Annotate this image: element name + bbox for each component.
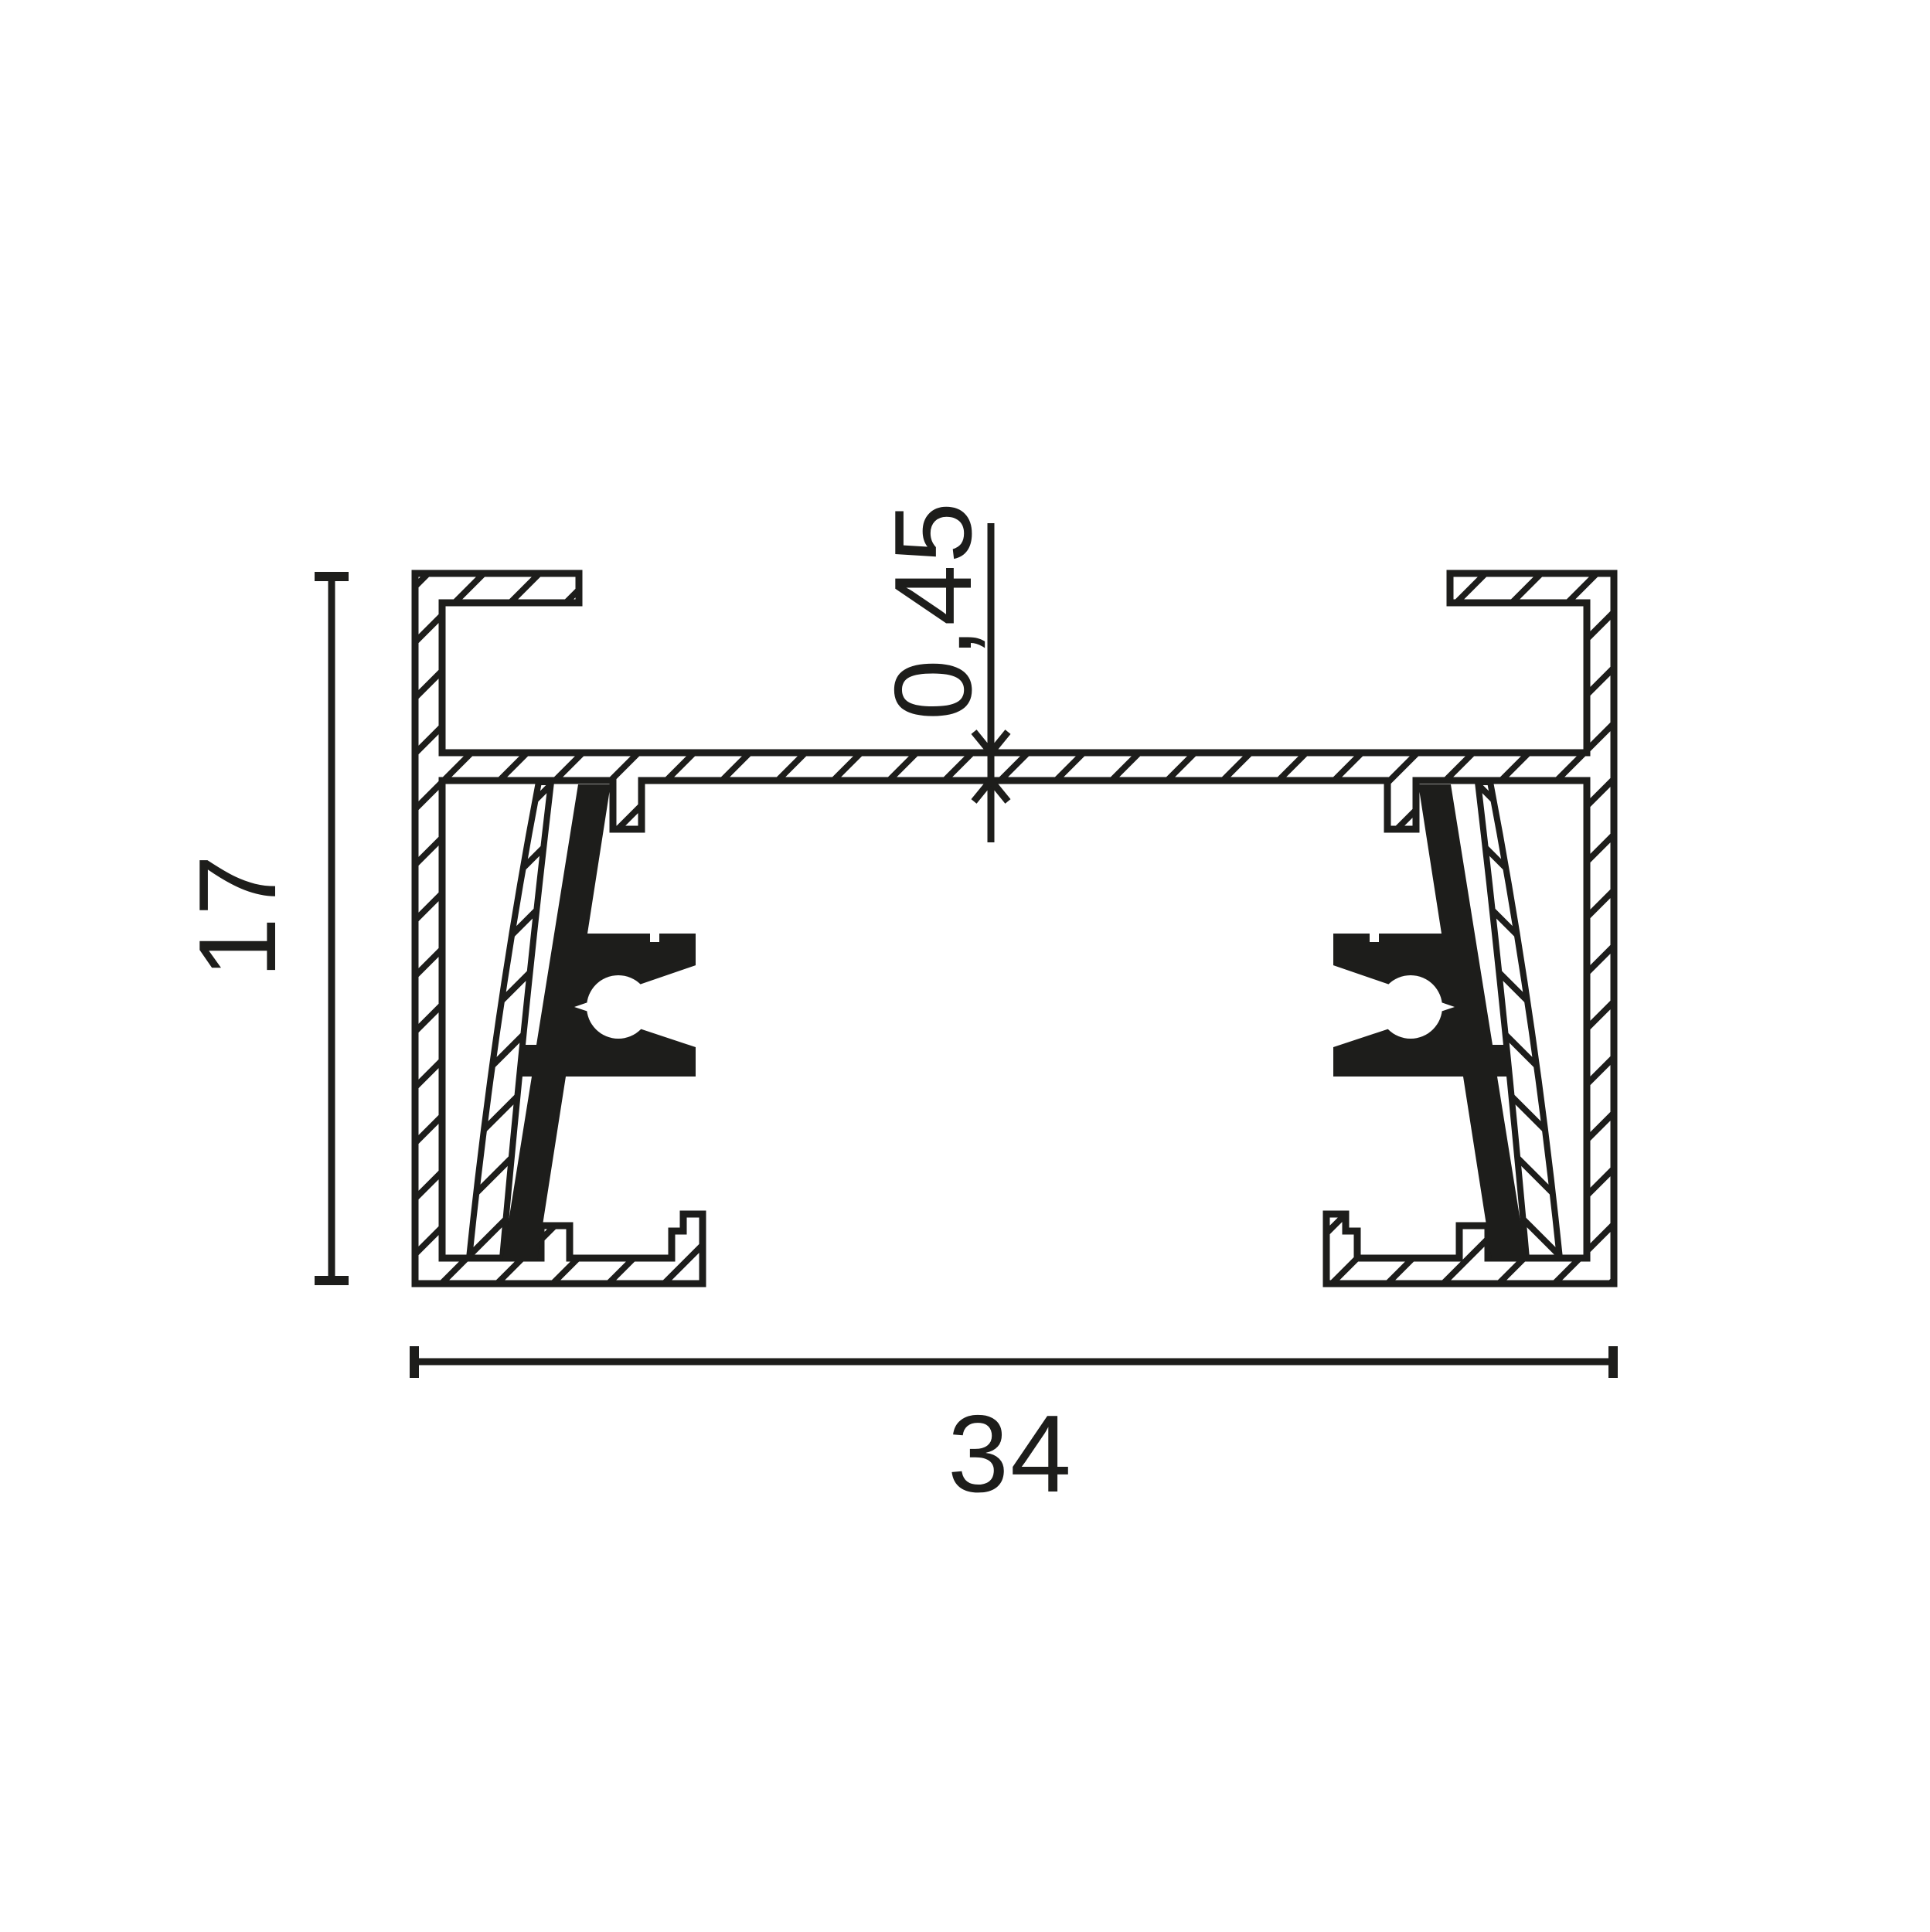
conductor-left: [469, 782, 700, 1260]
drawing-canvas: 17 0,45 34: [0, 0, 1930, 1932]
width-dim-label: 34: [948, 1393, 1073, 1515]
conductor-right: [1329, 782, 1560, 1260]
dimension-height: [315, 573, 349, 1284]
dimension-width: [414, 1346, 1613, 1378]
profile-cross-section-diagram: 17 0,45 34: [0, 0, 1930, 1932]
height-dim-label: 17: [176, 853, 299, 978]
profile-body: [415, 573, 1614, 1284]
web-dim-label: 0,45: [872, 501, 995, 720]
